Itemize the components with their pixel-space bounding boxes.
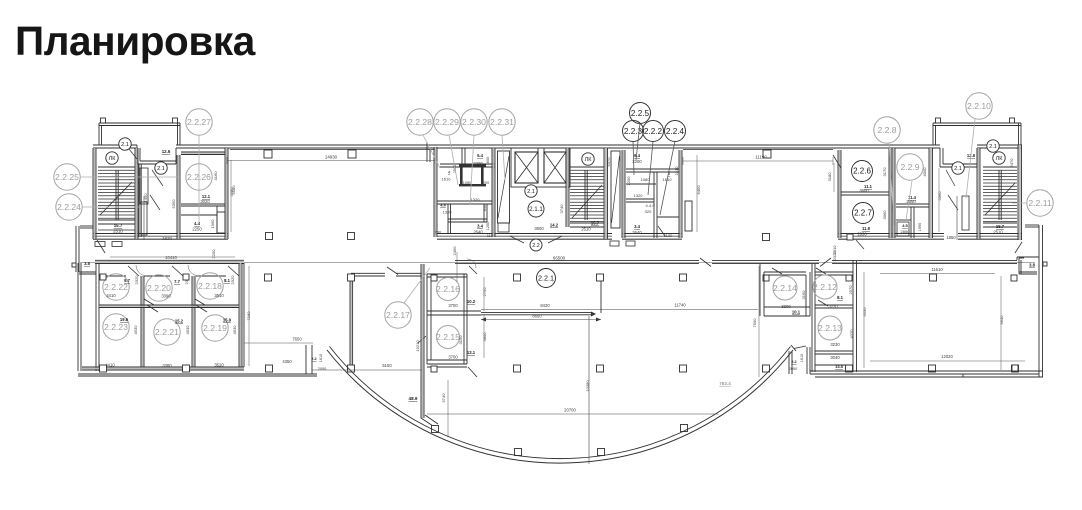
svg-text:2.2.19: 2.2.19: [203, 323, 227, 333]
svg-text:1990: 1990: [918, 223, 922, 231]
svg-text:3.8: 3.8: [84, 261, 90, 266]
svg-text:10.2: 10.2: [467, 299, 476, 304]
svg-text:2.2.24: 2.2.24: [57, 202, 81, 212]
svg-text:4.4: 4.4: [194, 221, 200, 226]
svg-text:5360: 5360: [937, 191, 942, 201]
svg-text:ЛК: ЛК: [585, 157, 593, 163]
svg-text:2.2.18: 2.2.18: [198, 281, 222, 291]
svg-text:13.8: 13.8: [835, 364, 844, 369]
svg-text:6470: 6470: [1009, 158, 1014, 168]
svg-text:3700: 3700: [448, 303, 458, 308]
svg-text:2.2.10: 2.2.10: [967, 101, 991, 111]
svg-text:320: 320: [645, 209, 652, 214]
svg-text:2.2: 2.2: [791, 360, 796, 364]
svg-text:4410: 4410: [106, 293, 116, 298]
svg-text:1130: 1130: [664, 233, 673, 238]
svg-text:2.1: 2.1: [989, 144, 997, 150]
svg-text:3800: 3800: [482, 332, 487, 342]
svg-text:13.1: 13.1: [467, 350, 476, 355]
svg-text:3.4: 3.4: [634, 224, 640, 229]
svg-text:3220: 3220: [828, 304, 838, 309]
svg-text:2200: 2200: [473, 161, 483, 166]
svg-text:2.2.31: 2.2.31: [490, 117, 514, 127]
svg-text:6580: 6580: [231, 185, 236, 195]
svg-text:1320: 1320: [471, 197, 481, 202]
svg-text:2.2.11: 2.2.11: [1028, 198, 1051, 208]
svg-text:2510: 2510: [581, 227, 591, 232]
svg-text:3.8: 3.8: [1029, 263, 1035, 268]
svg-text:2050: 2050: [318, 367, 326, 371]
svg-text:3060: 3060: [882, 210, 887, 220]
svg-text:1200: 1200: [481, 181, 489, 185]
svg-text:5.4: 5.4: [477, 153, 483, 158]
svg-text:ЛК: ЛК: [109, 156, 117, 162]
svg-text:2850: 2850: [901, 229, 911, 234]
svg-text:2.2.25: 2.2.25: [55, 172, 79, 182]
svg-text:14930: 14930: [325, 154, 338, 159]
svg-text:2.2.29: 2.2.29: [435, 117, 459, 127]
svg-text:2.2.4: 2.2.4: [666, 127, 685, 136]
svg-text:8650: 8650: [532, 314, 542, 319]
svg-text:3020: 3020: [200, 199, 210, 204]
svg-text:3700: 3700: [448, 355, 458, 360]
svg-text:1990: 1990: [210, 219, 215, 229]
svg-text:2320: 2320: [230, 275, 235, 285]
svg-text:2200: 2200: [626, 176, 631, 186]
svg-text:4.5: 4.5: [902, 223, 908, 228]
svg-text:11740: 11740: [674, 303, 686, 308]
svg-text:5150: 5150: [382, 363, 392, 368]
svg-text:2.2: 2.2: [311, 357, 316, 361]
svg-text:2.1: 2.1: [954, 166, 962, 172]
svg-text:11610: 11610: [931, 267, 943, 272]
svg-text:850: 850: [483, 205, 487, 211]
svg-text:2.2.17: 2.2.17: [386, 310, 410, 320]
svg-text:2.2.30: 2.2.30: [462, 117, 486, 127]
svg-text:2750: 2750: [482, 287, 487, 297]
svg-text:10.1: 10.1: [792, 310, 801, 315]
svg-text:3190: 3190: [801, 290, 806, 300]
svg-text:14.2: 14.2: [550, 223, 559, 228]
svg-text:3390: 3390: [161, 294, 171, 299]
svg-text:2310: 2310: [674, 166, 679, 176]
svg-text:630: 630: [435, 231, 441, 235]
svg-text:2.2.28: 2.2.28: [408, 117, 432, 127]
svg-text:2.2.9: 2.2.9: [900, 162, 919, 172]
svg-text:2.1: 2.1: [157, 166, 165, 172]
svg-text:2.1.1: 2.1.1: [529, 206, 543, 213]
svg-text:7650: 7650: [292, 337, 302, 342]
svg-text:3600: 3600: [859, 188, 869, 193]
svg-text:1600: 1600: [486, 157, 490, 165]
svg-text:15.9: 15.9: [223, 318, 232, 323]
svg-text:3040: 3040: [830, 355, 840, 360]
svg-text:2510: 2510: [113, 229, 123, 234]
svg-text:1320: 1320: [634, 193, 644, 198]
svg-text:4000: 4000: [922, 167, 927, 177]
svg-text:15.2: 15.2: [175, 319, 184, 324]
svg-text:1610: 1610: [800, 354, 804, 362]
svg-text:1610: 1610: [319, 354, 323, 362]
svg-text:2.2.15: 2.2.15: [436, 332, 460, 342]
svg-text:66500: 66500: [553, 256, 566, 261]
svg-text:2320: 2320: [134, 275, 139, 285]
svg-text:4530: 4530: [185, 325, 190, 335]
svg-text:1820: 1820: [162, 236, 172, 241]
svg-text:9.7: 9.7: [124, 278, 130, 283]
svg-text:2640: 2640: [473, 230, 483, 235]
svg-text:2.2.23: 2.2.23: [104, 322, 128, 332]
svg-text:7500: 7500: [752, 318, 757, 328]
svg-text:2.2.2: 2.2.2: [644, 127, 663, 136]
svg-text:3520: 3520: [214, 363, 224, 368]
svg-text:2.2: 2.2: [532, 243, 540, 249]
svg-text:1850: 1850: [946, 235, 956, 240]
svg-text:2570: 2570: [848, 285, 853, 295]
svg-text:6530: 6530: [862, 307, 867, 317]
svg-text:2050: 2050: [789, 367, 797, 371]
svg-text:2.2.7: 2.2.7: [854, 209, 872, 218]
svg-text:10410: 10410: [165, 255, 177, 260]
svg-text:1250: 1250: [486, 222, 490, 230]
svg-text:2.2.22: 2.2.22: [104, 282, 128, 292]
svg-text:6.4: 6.4: [634, 153, 640, 158]
svg-text:1400: 1400: [143, 193, 148, 203]
svg-text:2.2.20: 2.2.20: [147, 283, 171, 293]
svg-text:11190: 11190: [755, 154, 767, 159]
svg-text:762.4: 762.4: [719, 381, 731, 386]
svg-text:4370: 4370: [849, 329, 854, 339]
svg-text:4: 4: [448, 170, 451, 175]
svg-text:2.2.13: 2.2.13: [818, 323, 842, 333]
svg-text:4.4.9: 4.4.9: [646, 203, 656, 208]
svg-text:2.2.5: 2.2.5: [631, 109, 650, 118]
svg-text:2.2.16: 2.2.16: [436, 284, 460, 294]
svg-text:5740: 5740: [441, 393, 446, 403]
svg-text:48.9: 48.9: [409, 396, 418, 401]
svg-text:2.2.1: 2.2.1: [538, 273, 554, 282]
svg-text:20700: 20700: [564, 408, 576, 413]
svg-text:7180: 7180: [246, 311, 251, 321]
svg-text:11.9: 11.9: [862, 226, 871, 231]
svg-text:2450: 2450: [452, 246, 457, 256]
svg-text:15.7: 15.7: [114, 223, 123, 228]
svg-text:2510: 2510: [993, 230, 1003, 235]
svg-text:3510: 3510: [214, 293, 224, 298]
svg-text:4530: 4530: [232, 325, 237, 335]
svg-text:8.1: 8.1: [837, 295, 843, 300]
svg-text:2850: 2850: [906, 199, 916, 204]
svg-text:2250: 2250: [192, 227, 202, 232]
svg-text:12020: 12020: [941, 354, 953, 359]
svg-text:1080: 1080: [641, 177, 651, 182]
svg-text:19.6: 19.6: [120, 317, 129, 322]
svg-text:8430: 8430: [540, 303, 550, 308]
svg-text:7.7: 7.7: [174, 279, 180, 284]
svg-text:2200: 2200: [211, 249, 216, 259]
svg-text:3380: 3380: [162, 363, 172, 368]
svg-text:2.2.14: 2.2.14: [773, 283, 797, 293]
svg-text:15.7: 15.7: [996, 224, 1005, 229]
svg-text:9640: 9640: [999, 315, 1004, 325]
svg-text:3800: 3800: [534, 226, 544, 231]
svg-text:5350: 5350: [171, 199, 176, 209]
svg-text:ЛК: ЛК: [996, 156, 1004, 162]
svg-text:15.7: 15.7: [591, 221, 600, 226]
svg-text:Планировка: Планировка: [15, 18, 256, 64]
svg-text:10380: 10380: [585, 380, 590, 392]
svg-text:19210: 19210: [415, 340, 420, 352]
svg-text:3150: 3150: [458, 335, 463, 345]
svg-text:3180: 3180: [827, 172, 832, 182]
svg-text:3.4: 3.4: [477, 224, 483, 229]
svg-text:1080: 1080: [463, 181, 471, 185]
svg-text:3300: 3300: [781, 304, 791, 309]
svg-text:2.1: 2.1: [527, 189, 535, 195]
svg-text:4.4: 4.4: [440, 203, 446, 208]
svg-text:2.1: 2.1: [121, 142, 129, 148]
svg-text:6470: 6470: [606, 157, 611, 167]
svg-text:3170: 3170: [882, 167, 887, 177]
svg-text:12.6: 12.6: [162, 149, 171, 154]
svg-text:4530: 4530: [133, 325, 138, 335]
svg-text:4160: 4160: [213, 171, 218, 181]
svg-text:2640: 2640: [632, 230, 642, 235]
svg-text:2.2.12: 2.2.12: [813, 282, 837, 292]
svg-text:2320: 2320: [832, 251, 837, 261]
svg-text:2.2.21: 2.2.21: [155, 327, 179, 337]
svg-text:2.2.6: 2.2.6: [853, 167, 871, 176]
svg-text:4350: 4350: [282, 359, 292, 364]
svg-text:2.2.8: 2.2.8: [877, 125, 896, 135]
svg-text:2950: 2950: [857, 232, 867, 237]
svg-text:1610: 1610: [442, 177, 452, 182]
svg-text:3740: 3740: [559, 204, 564, 214]
svg-text:3230: 3230: [830, 342, 840, 347]
svg-text:2.2.27: 2.2.27: [187, 117, 211, 127]
svg-text:1320: 1320: [443, 210, 453, 215]
